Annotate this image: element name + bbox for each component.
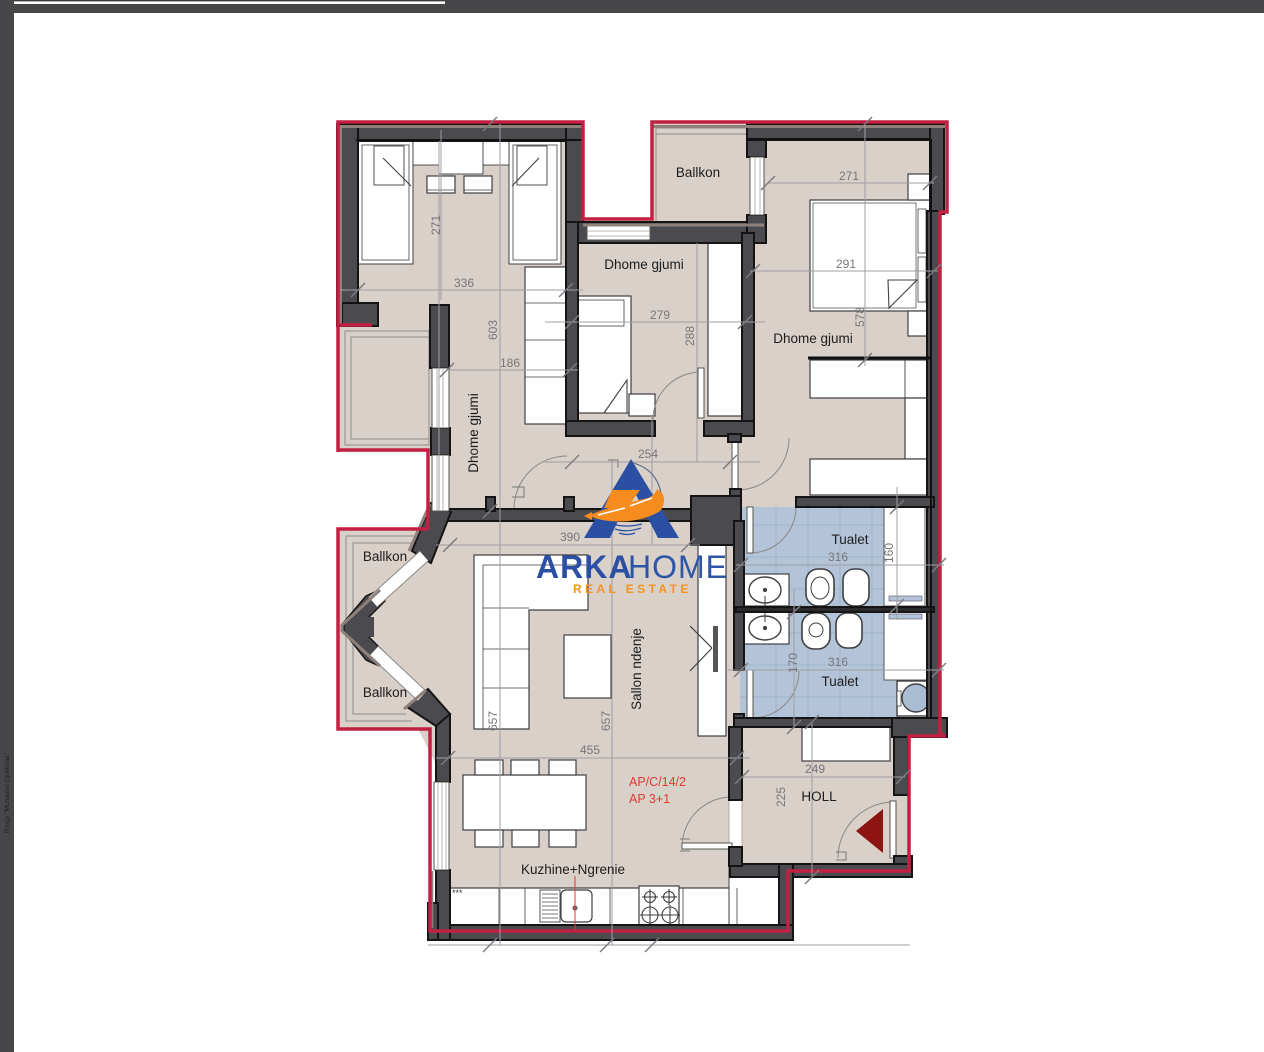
- svg-text:186: 186: [500, 356, 520, 370]
- svg-text:455: 455: [580, 743, 600, 757]
- svg-text:657: 657: [486, 711, 500, 731]
- svg-text:254: 254: [638, 447, 658, 461]
- svg-text:249: 249: [805, 762, 825, 776]
- svg-text:***: ***: [452, 888, 463, 898]
- svg-text:Kuzhine+Ngrenie: Kuzhine+Ngrenie: [521, 862, 625, 877]
- svg-text:ARKA: ARKA: [536, 549, 632, 585]
- svg-text:316: 316: [828, 655, 848, 669]
- svg-text:316: 316: [828, 550, 848, 564]
- svg-text:271: 271: [839, 169, 859, 183]
- svg-text:170: 170: [786, 653, 800, 673]
- svg-text:HOLL: HOLL: [801, 789, 837, 804]
- svg-text:160: 160: [882, 543, 896, 563]
- svg-text:HOME: HOME: [628, 549, 728, 585]
- svg-text:Tualet: Tualet: [831, 532, 868, 547]
- svg-text:REAL ESTATE: REAL ESTATE: [573, 582, 692, 596]
- svg-text:225: 225: [774, 787, 788, 807]
- svg-text:291: 291: [836, 257, 856, 271]
- svg-text:Tualet: Tualet: [821, 674, 858, 689]
- svg-text:Dhome gjumi: Dhome gjumi: [466, 393, 481, 473]
- svg-text:390: 390: [560, 530, 580, 544]
- svg-text:336: 336: [454, 276, 474, 290]
- svg-text:AP/C/14/2: AP/C/14/2: [629, 775, 686, 789]
- svg-text:271: 271: [429, 215, 443, 235]
- svg-text:Dhome gjumi: Dhome gjumi: [604, 257, 684, 272]
- svg-text:Dhome gjumi: Dhome gjumi: [773, 331, 853, 346]
- svg-text:Sallon ndenje: Sallon ndenje: [629, 628, 644, 710]
- svg-text:Ballkon: Ballkon: [363, 549, 407, 564]
- svg-text:657: 657: [599, 711, 613, 731]
- svg-text:Ballkon: Ballkon: [363, 685, 407, 700]
- svg-text:578: 578: [853, 307, 867, 327]
- svg-text:288: 288: [683, 326, 697, 346]
- svg-text:603: 603: [486, 320, 500, 340]
- svg-text:279: 279: [650, 308, 670, 322]
- svg-text:Ballkon: Ballkon: [676, 165, 720, 180]
- svg-text:Rruga "Muhamet Gjollesha": Rruga "Muhamet Gjollesha": [4, 752, 11, 833]
- svg-text:AP 3+1: AP 3+1: [629, 792, 670, 806]
